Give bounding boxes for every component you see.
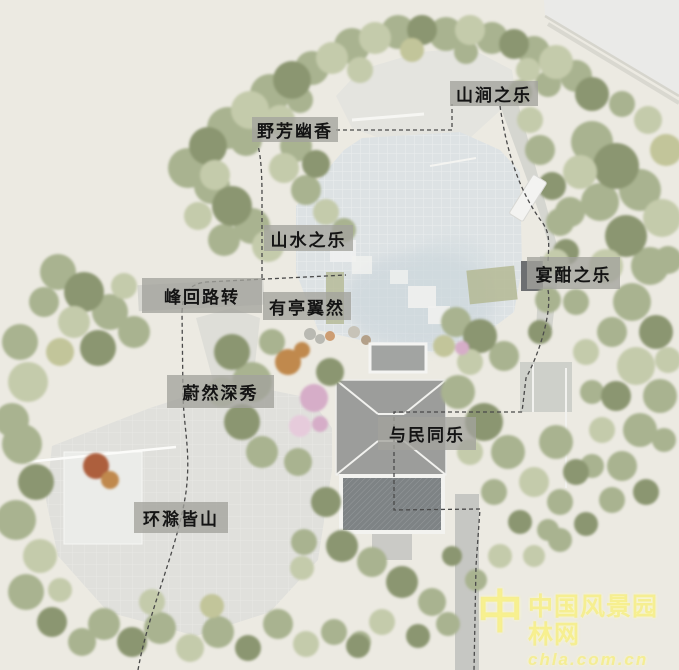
scene-label-text: 与民同乐 (389, 421, 465, 446)
scene-label-text: 环滁皆山 (143, 505, 219, 530)
site-plan-rendering (0, 0, 679, 670)
scene-label-text: 峰回路转 (164, 283, 240, 308)
scene-label-yefangyouxiang: 野芳幽香 (252, 117, 338, 142)
scene-label-fenghuiluzhuan: 峰回路转 (142, 278, 262, 313)
scene-label-text: 山涧之乐 (456, 81, 532, 106)
site-plan-canvas: 山涧之乐 野芳幽香 山水之乐 宴酣之乐 峰回路转 有亭翼然 蔚然深秀 与民同乐 … (0, 0, 679, 670)
scene-label-text: 有亭翼然 (269, 294, 345, 319)
scene-label-shanshuizhile: 山水之乐 (264, 225, 353, 251)
scene-label-youtingyiran: 有亭翼然 (263, 292, 351, 320)
scene-label-text: 宴酣之乐 (536, 261, 612, 286)
scene-label-text: 蔚然深秀 (183, 379, 259, 404)
scene-label-weiranshenxiu: 蔚然深秀 (167, 375, 274, 408)
scene-label-yanhanzhile: 宴酣之乐 (527, 257, 620, 289)
scene-label-text: 山水之乐 (271, 226, 347, 251)
scene-label-shanjianzhile: 山涧之乐 (450, 81, 538, 106)
scene-label-text: 野芳幽香 (257, 117, 333, 142)
scene-label-huanchujieshan: 环滁皆山 (134, 502, 228, 533)
scene-label-yumintongle: 与民同乐 (378, 417, 476, 450)
